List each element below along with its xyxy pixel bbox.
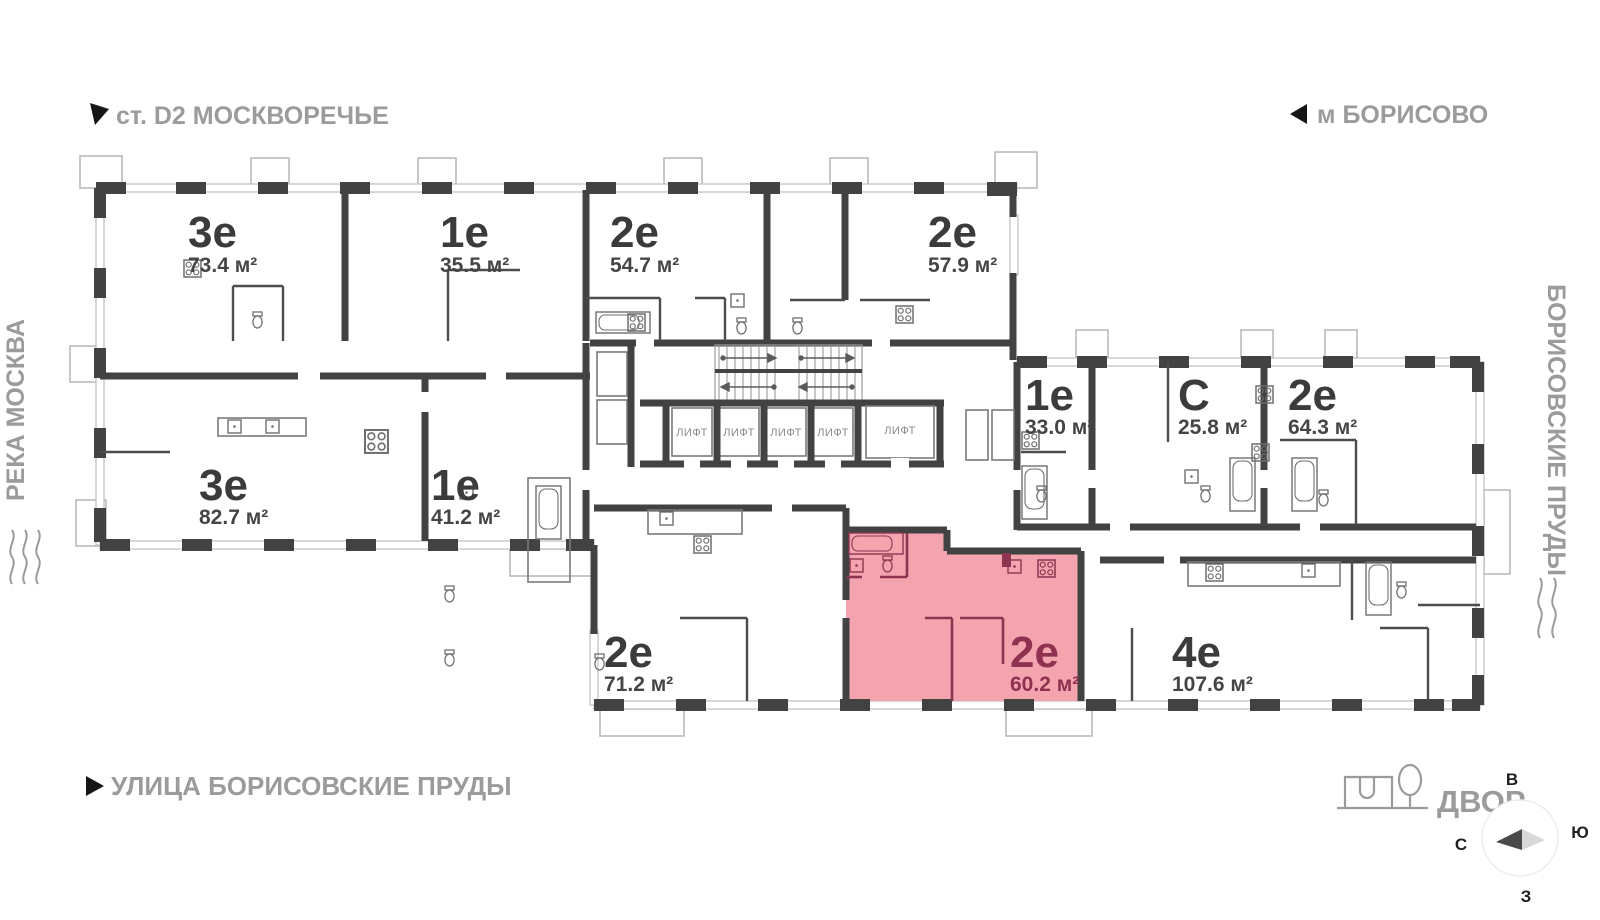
elevator-label: ЛИФТ [817, 427, 849, 439]
floor-plan-canvas: ЛИФТ ЛИФТ ЛИФТ ЛИФТ ЛИФТ [0, 0, 1600, 920]
svg-text:2е[interactable]: 2е [1010, 628, 1059, 677]
svg-text:1е[interactable]: 1е [431, 461, 480, 510]
street-pointer-icon [86, 776, 104, 796]
staircase [715, 345, 862, 401]
compass-north: С [1455, 835, 1467, 854]
svg-text:41.2 м²: 41.2 м² [431, 506, 500, 529]
river-text: РЕКА МОСКВА [2, 319, 30, 501]
apartment-label-3e-73[interactable]: 3е 73.4 м² [188, 208, 257, 277]
svg-text:57.9 м²: 57.9 м² [928, 254, 997, 277]
apartment-label-2e-64[interactable]: 2е 64.3 м² [1288, 371, 1357, 439]
svg-text:1е[interactable]: 1е [440, 208, 489, 257]
stove-icon [365, 430, 388, 453]
svg-text:73.4 м²: 73.4 м² [188, 254, 257, 277]
elevator-label: ЛИФТ [676, 427, 708, 439]
water-waves-icon [10, 530, 39, 584]
street-text: УЛИЦА БОРИСОВСКИЕ ПРУДЫ [111, 771, 512, 801]
svg-text:35.5 м²: 35.5 м² [440, 254, 509, 277]
svg-text:2е[interactable]: 2е [604, 628, 653, 677]
svg-text:64.3 м²: 64.3 м² [1288, 416, 1357, 439]
toilet-icon [253, 312, 262, 328]
svg-text:С[interactable]: С [1178, 371, 1210, 420]
bathtub-icon [1366, 562, 1391, 615]
elevator-label: ЛИФТ [723, 427, 755, 439]
toilet-icon [1397, 582, 1406, 598]
stove-icon [896, 306, 913, 323]
svg-text:4е[interactable]: 4е [1172, 628, 1221, 677]
svg-text:1е[interactable]: 1е [1025, 371, 1074, 420]
svg-text:3е[interactable]: 3е [188, 208, 237, 257]
bathtub-icon [1230, 458, 1255, 511]
apartment-label-1e-35[interactable]: 1е 35.5 м² [440, 208, 509, 277]
station-text: ст. D2 МОСКВОРЕЧЬЕ [116, 102, 389, 130]
compass-west: З [1521, 887, 1532, 906]
metro-pointer-icon [1290, 104, 1307, 124]
toilet-icon [1319, 490, 1328, 506]
toilet-icon [1037, 486, 1046, 502]
elevator-label: ЛИФТ [884, 425, 916, 437]
svg-text:2е[interactable]: 2е [610, 208, 659, 257]
station-label: ст. D2 МОСКВОРЕЧЬЕ [90, 102, 389, 130]
floor-plan-page: ЛИФТ ЛИФТ ЛИФТ ЛИФТ ЛИФТ [0, 0, 1600, 920]
street-label: УЛИЦА БОРИСОВСКИЕ ПРУДЫ [86, 771, 512, 801]
svg-text:54.7 м²: 54.7 м² [610, 254, 679, 277]
svg-text:2е[interactable]: 2е [1288, 371, 1337, 420]
svg-text:2е[interactable]: 2е [928, 208, 977, 257]
compass-south: Ю [1571, 823, 1589, 842]
station-pointer-icon [90, 103, 109, 125]
stove-icon [694, 536, 711, 553]
svg-text:25.8 м²: 25.8 м² [1178, 416, 1247, 439]
river-label: РЕКА МОСКВА [2, 319, 40, 584]
bathtub-icon [536, 486, 561, 539]
toilet-icon [793, 318, 802, 334]
svg-text:82.7 м²: 82.7 м² [199, 506, 268, 529]
kitchen-counter [648, 510, 742, 534]
apartment-label-1e-41[interactable]: 1е 41.2 м² [431, 461, 500, 529]
sink-icon [266, 420, 279, 433]
sink-icon [228, 420, 241, 433]
apartment-label-2e-71[interactable]: 2е 71.2 м² [604, 628, 673, 696]
stove-icon [1206, 564, 1223, 581]
sink-icon [1185, 470, 1198, 483]
toilet-icon [737, 318, 746, 334]
bathtub-icon [1022, 466, 1047, 519]
ponds-text: БОРИСОВСКИЕ ПРУДЫ [1542, 284, 1570, 576]
apartment-label-3e-82[interactable]: 3е 82.7 м² [199, 461, 268, 529]
apartment-label-1e-33[interactable]: 1е 33.0 м² [1025, 371, 1094, 439]
sink-icon [1302, 564, 1315, 577]
svg-text:60.2 м²: 60.2 м² [1010, 673, 1079, 696]
ponds-label: БОРИСОВСКИЕ ПРУДЫ [1538, 284, 1570, 638]
bathtub-icon [596, 312, 650, 333]
toilet-icon [445, 650, 454, 666]
sink-icon [660, 512, 673, 525]
metro-text: м БОРИСОВО [1317, 101, 1488, 129]
apartment-label-2e-54[interactable]: 2е 54.7 м² [610, 208, 679, 277]
bathtub-icon [1292, 458, 1317, 511]
apartment-label-s-25[interactable]: С 25.8 м² [1178, 371, 1247, 439]
svg-text:33.0 м²: 33.0 м² [1025, 416, 1094, 439]
apartment-label-4e-107[interactable]: 4е 107.6 м² [1172, 628, 1253, 696]
elevator-label: ЛИФТ [770, 427, 802, 439]
apartment-label-2e-57[interactable]: 2е 57.9 м² [928, 208, 997, 277]
metro-label: м БОРИСОВО [1290, 101, 1488, 129]
svg-text:107.6 м²: 107.6 м² [1172, 673, 1253, 696]
toilet-icon [1201, 486, 1210, 502]
sink-icon [731, 294, 744, 307]
water-waves-icon [1538, 578, 1555, 638]
compass-east: В [1506, 770, 1518, 789]
courtyard-icon [1337, 765, 1428, 808]
toilet-icon [445, 586, 454, 602]
svg-text:71.2 м²: 71.2 м² [604, 673, 673, 696]
svg-text:3е[interactable]: 3е [199, 461, 248, 510]
